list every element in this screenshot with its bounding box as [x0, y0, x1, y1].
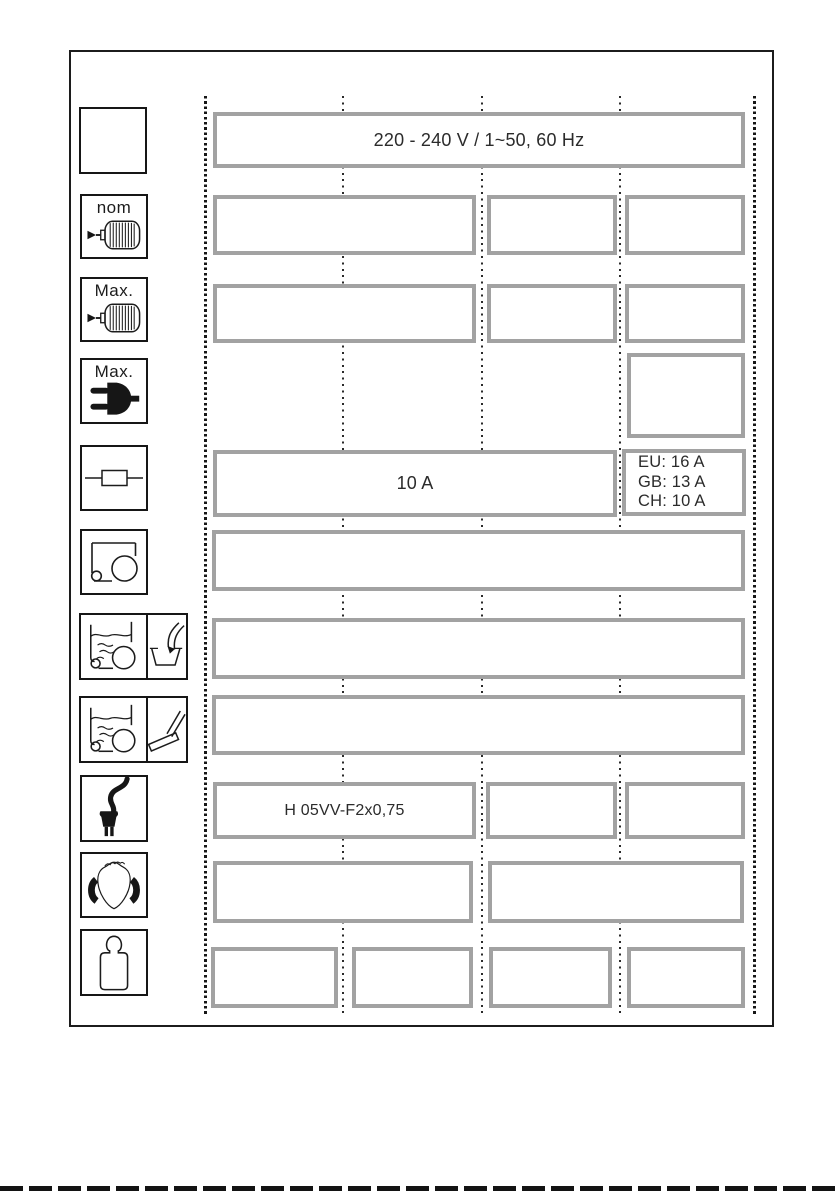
plug-max-icon-box: Max.	[80, 358, 148, 424]
manual-page: nom Max. Max.	[0, 0, 840, 1192]
nominal-power-cell-2	[487, 195, 617, 255]
sound-level-cell-1	[213, 861, 473, 923]
weight-icon	[83, 931, 145, 993]
fuse-ch-value: CH: 10 A	[638, 492, 706, 512]
vacuum-cleaner-icon-box	[80, 529, 148, 595]
weight-cell-2	[352, 947, 473, 1008]
wet-pickup-container-spec-cell	[212, 618, 745, 679]
max-power-cell-3	[625, 284, 745, 343]
nominal-power-cell-1	[213, 195, 476, 255]
nominal-label: nom	[82, 196, 146, 217]
vacuum-spec-cell	[212, 530, 745, 591]
floor-nozzle-icon	[148, 700, 186, 760]
max-plug-label: Max.	[82, 360, 146, 381]
wet-vacuum-cell	[81, 615, 146, 678]
power-cord-cell-3	[625, 782, 745, 839]
fuse-eu-value: EU: 16 A	[638, 453, 705, 473]
sound-level-cell-2	[488, 861, 744, 923]
fuse-icon	[82, 449, 146, 507]
voltage-cell: 220 - 240 V / 1~50, 60 Hz	[213, 112, 745, 168]
hearing-sound-icon-box	[80, 852, 148, 918]
fuse-cell: 10 A	[213, 450, 617, 517]
plug-icon	[84, 381, 144, 418]
hearing-sound-icon	[83, 855, 145, 915]
max-motor-label: Max.	[82, 279, 146, 300]
grid-line-right	[753, 96, 756, 1016]
weight-cell-3	[489, 947, 612, 1008]
vacuum-cleaner-icon	[82, 532, 146, 592]
wet-pickup-floor-icon-box	[79, 696, 188, 763]
power-cord-cell-1: H 05VV-F2x0,75	[213, 782, 476, 839]
max-power-cell-2	[487, 284, 617, 343]
wet-pickup-floor-spec-cell	[212, 695, 745, 755]
weight-cell-1	[211, 947, 338, 1008]
max-plug-power-cell	[627, 353, 745, 438]
motor-nominal-icon-box: nom	[80, 194, 148, 259]
fuse-gb-value: GB: 13 A	[638, 473, 706, 493]
container-nozzle-cell	[148, 615, 186, 678]
nominal-power-cell-3	[625, 195, 745, 255]
cable-type-value: H 05VV-F2x0,75	[284, 802, 404, 820]
wet-pickup-container-icon-box	[79, 613, 188, 680]
motor-icon	[84, 300, 144, 336]
wet-vacuum-icon	[83, 700, 145, 760]
grid-line-left	[204, 96, 207, 1016]
floor-nozzle-cell	[148, 698, 186, 761]
power-cord-icon-box	[80, 775, 148, 842]
wet-vacuum-icon	[83, 617, 145, 677]
cut-dashed-line	[0, 1186, 840, 1191]
weight-icon-box	[80, 929, 148, 996]
fuse-regional-cell: EU: 16 A GB: 13 A CH: 10 A	[622, 449, 746, 516]
fuse-value: 10 A	[397, 473, 434, 494]
container-nozzle-icon	[148, 617, 186, 677]
weight-cell-4	[627, 947, 745, 1008]
power-cord-icon	[84, 777, 144, 839]
voltage-value: 220 - 240 V / 1~50, 60 Hz	[374, 130, 585, 151]
motor-max-icon-box: Max.	[80, 277, 148, 342]
power-cord-cell-2	[486, 782, 617, 839]
motor-icon	[84, 217, 144, 253]
blank-box	[79, 107, 147, 174]
max-power-cell-1	[213, 284, 476, 343]
wet-vacuum-cell	[81, 698, 146, 761]
fuse-icon-box	[80, 445, 148, 511]
